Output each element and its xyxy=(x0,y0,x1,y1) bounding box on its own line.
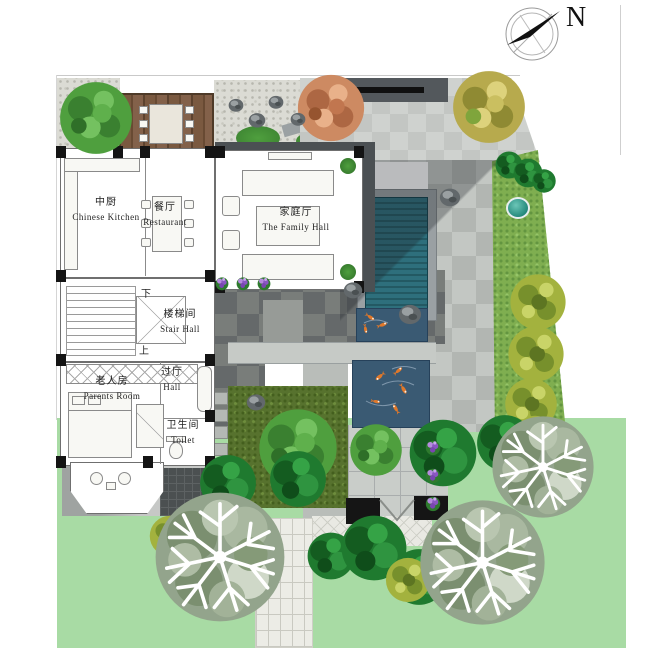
purple-flower-pot xyxy=(258,277,271,290)
landscape-rock xyxy=(247,394,265,410)
label-family-hall-cn: 家庭厅 xyxy=(246,206,346,221)
white-branch-tree xyxy=(156,493,285,622)
label-hall-cn: 过厅 xyxy=(152,366,192,381)
olive-tree-row xyxy=(508,326,563,381)
label-hall-en: Hall xyxy=(152,381,192,394)
autumn-tree xyxy=(298,75,364,141)
yellow-tree xyxy=(453,71,525,143)
vegetation-layer xyxy=(0,0,650,650)
landscape-rock xyxy=(229,99,244,112)
label-toilet-en: Toilet xyxy=(158,434,208,447)
entrance-shrub xyxy=(350,424,402,476)
green-tree-topleft xyxy=(60,82,132,154)
label-hall: 过厅 Hall xyxy=(152,366,192,394)
stair-down-label: 下 xyxy=(141,285,151,300)
purple-flower-pot xyxy=(237,277,250,290)
label-family-hall-en: The Family Hall xyxy=(246,221,346,234)
label-parents-room-en: Parents Room xyxy=(72,390,152,403)
label-restaurant: 餐厅 Restaurant xyxy=(130,201,200,229)
landscape-rock xyxy=(344,282,362,298)
label-stair-hall-en: Stair Hall xyxy=(148,323,212,336)
label-toilet: 卫生间 Toilet xyxy=(158,419,208,447)
landscape-rock xyxy=(291,113,306,126)
label-stair-hall-cn: 楼梯间 xyxy=(148,308,212,323)
hedge-bush xyxy=(532,169,555,192)
label-parents-room: 老人房 Parents Room xyxy=(72,375,152,403)
label-toilet-cn: 卫生间 xyxy=(158,419,208,434)
white-branch-tree xyxy=(420,500,544,624)
landscape-rock xyxy=(249,113,266,127)
olive-tree-row xyxy=(510,274,565,329)
landscape-rock xyxy=(399,305,421,324)
purple-flower-bed xyxy=(426,441,440,455)
site-plan-canvas: 中厨 Chinese Kitchen 餐厅 Restaurant 家庭厅 The… xyxy=(0,0,650,650)
label-restaurant-cn: 餐厅 xyxy=(130,201,200,216)
purple-flower-pot xyxy=(216,277,229,290)
purple-flower-bed xyxy=(426,497,440,511)
label-family-hall: 家庭厅 The Family Hall xyxy=(246,206,346,234)
shrub-mass xyxy=(410,420,477,487)
purple-flower-bed xyxy=(426,469,440,483)
label-stair-hall: 楼梯间 Stair Hall xyxy=(148,308,212,336)
shrub-mass xyxy=(270,451,326,507)
compass-rose xyxy=(500,4,566,62)
label-parents-room-cn: 老人房 xyxy=(72,375,152,390)
landscape-rock xyxy=(269,96,284,109)
landscape-rock xyxy=(440,189,460,207)
label-restaurant-en: Restaurant xyxy=(130,216,200,229)
compass-north-label: N xyxy=(566,2,586,34)
white-branch-tree xyxy=(492,416,593,517)
stair-up-label: 上 xyxy=(139,342,149,357)
